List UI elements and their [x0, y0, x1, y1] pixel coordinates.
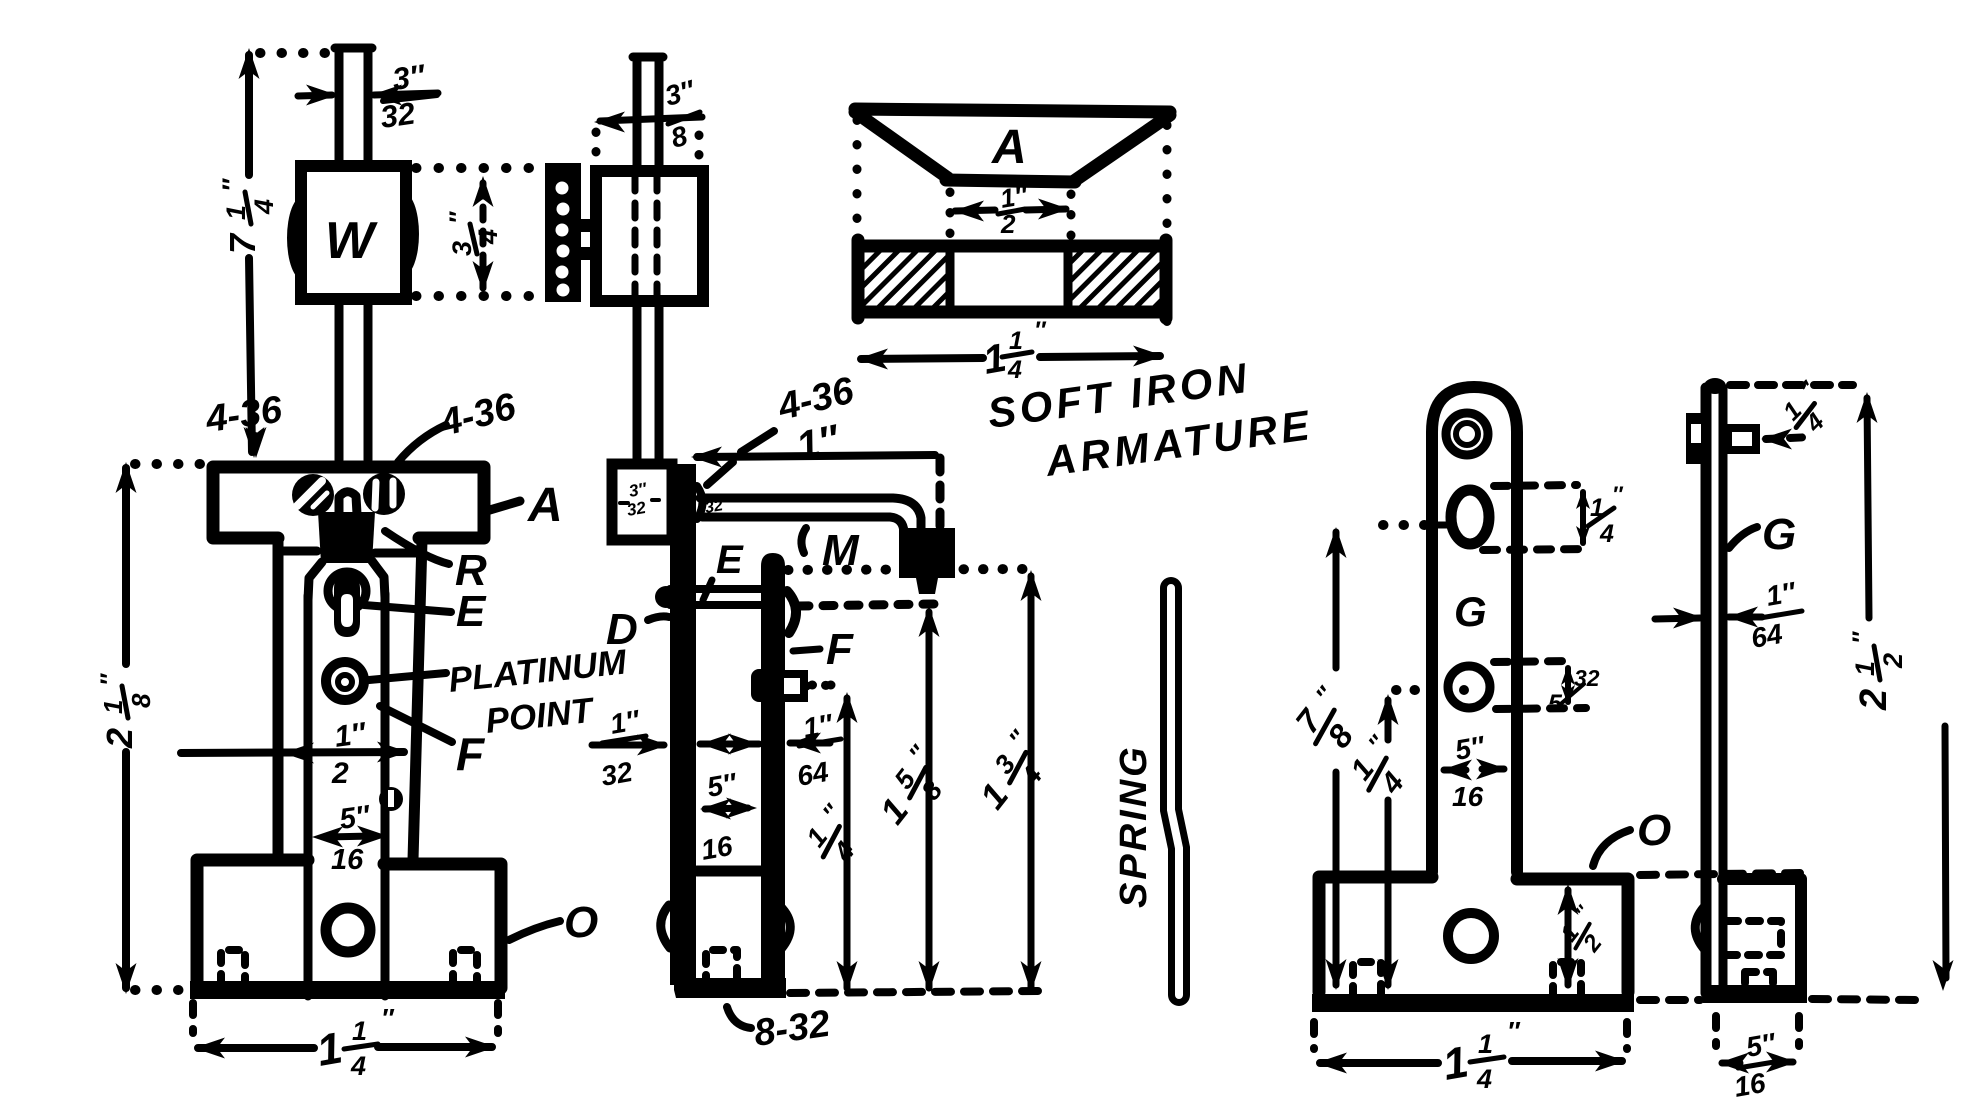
svg-text:E: E [716, 538, 744, 582]
svg-text:16: 16 [699, 830, 735, 866]
svg-text:4: 4 [350, 1051, 366, 1081]
svg-text:16: 16 [1452, 781, 1484, 812]
svg-text:5: 5 [1548, 690, 1563, 718]
svg-text:16: 16 [1732, 1067, 1768, 1103]
svg-text:F: F [826, 625, 854, 674]
svg-text:2: 2 [1878, 653, 1908, 669]
svg-text:O: O [564, 898, 598, 947]
svg-text:W: W [325, 212, 378, 270]
svg-text:G: G [1762, 510, 1796, 559]
svg-text:7: 7 [222, 232, 263, 254]
svg-text:4: 4 [473, 229, 503, 245]
svg-text:D: D [606, 605, 638, 654]
svg-text:″: ″ [1507, 1016, 1521, 1046]
svg-text:2: 2 [331, 757, 349, 790]
svg-text:4: 4 [1599, 520, 1614, 548]
svg-text:1″: 1″ [332, 717, 369, 754]
svg-text:1: 1 [1478, 1029, 1493, 1059]
svg-text:1: 1 [352, 1016, 367, 1046]
svg-text:64: 64 [795, 756, 831, 792]
svg-text:3″: 3″ [390, 58, 428, 97]
svg-text:F: F [456, 728, 486, 780]
svg-text:4: 4 [249, 199, 279, 215]
svg-text:″: ″ [1848, 631, 1876, 644]
svg-text:64: 64 [1749, 618, 1785, 654]
svg-text:4: 4 [1476, 1064, 1492, 1094]
svg-text:32: 32 [599, 756, 635, 792]
svg-text:A: A [991, 121, 1027, 174]
svg-text:″: ″ [1612, 482, 1624, 507]
svg-text:″: ″ [445, 211, 473, 224]
svg-text:″: ″ [1034, 317, 1047, 344]
svg-text:SPRING: SPRING [1113, 744, 1155, 908]
svg-text:A: A [527, 479, 563, 532]
svg-text:″: ″ [217, 178, 247, 192]
svg-text:G: G [1454, 588, 1487, 635]
svg-text:″: ″ [96, 673, 124, 686]
svg-text:5″: 5″ [338, 800, 373, 836]
svg-text:2: 2 [1853, 689, 1895, 711]
svg-text:16: 16 [331, 844, 364, 876]
svg-text:1: 1 [1009, 327, 1023, 355]
svg-text:4: 4 [1007, 356, 1022, 384]
svg-text:O: O [1637, 806, 1671, 855]
svg-text:E: E [456, 587, 487, 636]
svg-text:″: ″ [381, 1003, 395, 1033]
svg-text:32: 32 [378, 95, 417, 134]
svg-text:2: 2 [1000, 209, 1016, 239]
svg-text:2: 2 [99, 728, 140, 749]
svg-text:8: 8 [126, 693, 156, 708]
